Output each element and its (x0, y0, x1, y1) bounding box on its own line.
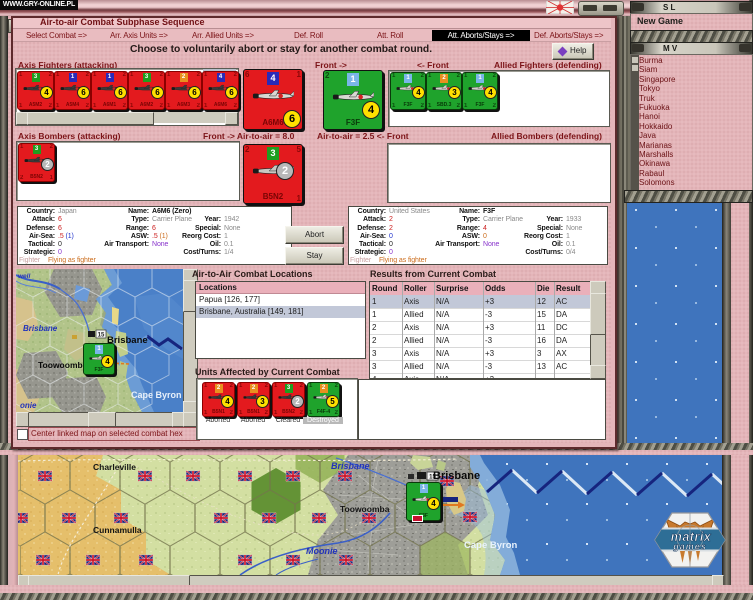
svg-text:well: well (18, 273, 30, 280)
svg-text:games: games (672, 542, 707, 552)
svg-text:Cape Byron: Cape Byron (464, 540, 518, 551)
svg-text:Toowoomba: Toowoomba (340, 504, 390, 514)
svg-text:Moonie: Moonie (306, 546, 338, 556)
svg-text:Charleville: Charleville (93, 462, 136, 472)
svg-text:Cape Byron: Cape Byron (131, 390, 182, 400)
svg-text:Brisbane: Brisbane (433, 470, 480, 482)
svg-text:Brisbane: Brisbane (331, 461, 370, 471)
svg-text:Toowoomba: Toowoomba (38, 360, 88, 370)
svg-text:15: 15 (98, 333, 105, 339)
svg-text:onie: onie (20, 401, 37, 410)
svg-text:Cunnamulla: Cunnamulla (93, 525, 142, 535)
svg-text:Brisbane: Brisbane (23, 324, 58, 333)
